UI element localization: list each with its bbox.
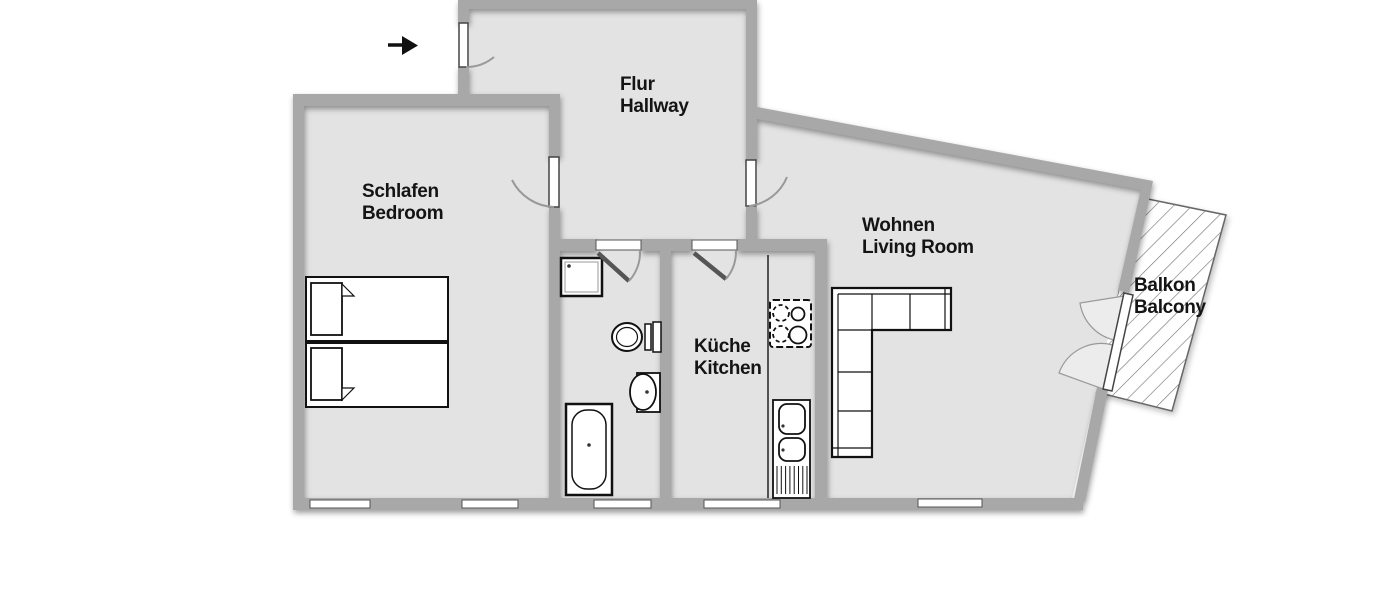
entry-wall-above-door: [458, 9, 469, 23]
hallway-right-wall-upper: [746, 0, 757, 160]
wash-basin-drain: [645, 390, 649, 394]
entrance-arrow-icon: [388, 36, 418, 55]
shower: [561, 258, 602, 296]
hallway-label-en: Hallway: [620, 96, 689, 117]
kitchen-label-en: Kitchen: [694, 358, 762, 379]
sink-drain-1: [781, 424, 784, 427]
living-room-door: [746, 160, 756, 206]
kitchen-window: [704, 500, 780, 508]
entrance-door: [459, 23, 468, 67]
kitchen-door-opening: [692, 240, 737, 250]
toilet-cistern: [653, 322, 661, 352]
kitchen-label-de: Küche: [694, 336, 751, 357]
pillow-bottom: [311, 348, 342, 400]
bedroom-right-wall-upper: [549, 94, 560, 157]
toilet-seat-hinge: [645, 324, 651, 350]
kitchen-sink-basin-1: [779, 404, 805, 434]
floor-plan-canvas: Schlafen Bedroom Flur Hallway Wohnen Liv…: [0, 0, 1400, 600]
bedroom-label-en: Bedroom: [362, 203, 443, 224]
bedroom-door: [549, 157, 559, 207]
bedroom-window-1: [310, 500, 370, 508]
bedroom-right-wall-lower: [549, 207, 560, 510]
hallway-bottom-wall-seg1: [549, 239, 597, 251]
floor-plan-page: Schlafen Bedroom Flur Hallway Wohnen Liv…: [0, 0, 1400, 600]
bathtub-inner: [572, 410, 606, 489]
living-room-label-en: Living Room: [862, 237, 974, 258]
bedroom-top-wall: [293, 94, 560, 106]
bathroom-right-wall: [660, 245, 671, 510]
living-room-window: [918, 499, 982, 507]
kitchen-right-wall: [815, 245, 827, 510]
bedroom-furniture: [306, 277, 448, 407]
floors: [304, 9, 1141, 500]
living-room-label-de: Wohnen: [862, 215, 935, 236]
shower-drain: [567, 264, 571, 268]
bedroom-window-2: [462, 500, 518, 508]
balcony-label-en: Balcony: [1134, 297, 1207, 318]
balcony-label-de: Balkon: [1134, 275, 1196, 296]
hallway-label-de: Flur: [620, 74, 656, 95]
kitchen-top-wall: [737, 239, 827, 251]
bathroom-window: [594, 500, 651, 508]
wash-basin: [630, 374, 656, 410]
sink-drain-2: [781, 448, 784, 451]
bathtub-drain: [587, 443, 591, 447]
bedroom-label-de: Schlafen: [362, 181, 439, 202]
pillow-top: [311, 283, 342, 335]
hallway-top-wall: [458, 0, 757, 9]
bedroom-left-wall: [293, 94, 304, 510]
bathroom-door-opening: [596, 240, 641, 250]
